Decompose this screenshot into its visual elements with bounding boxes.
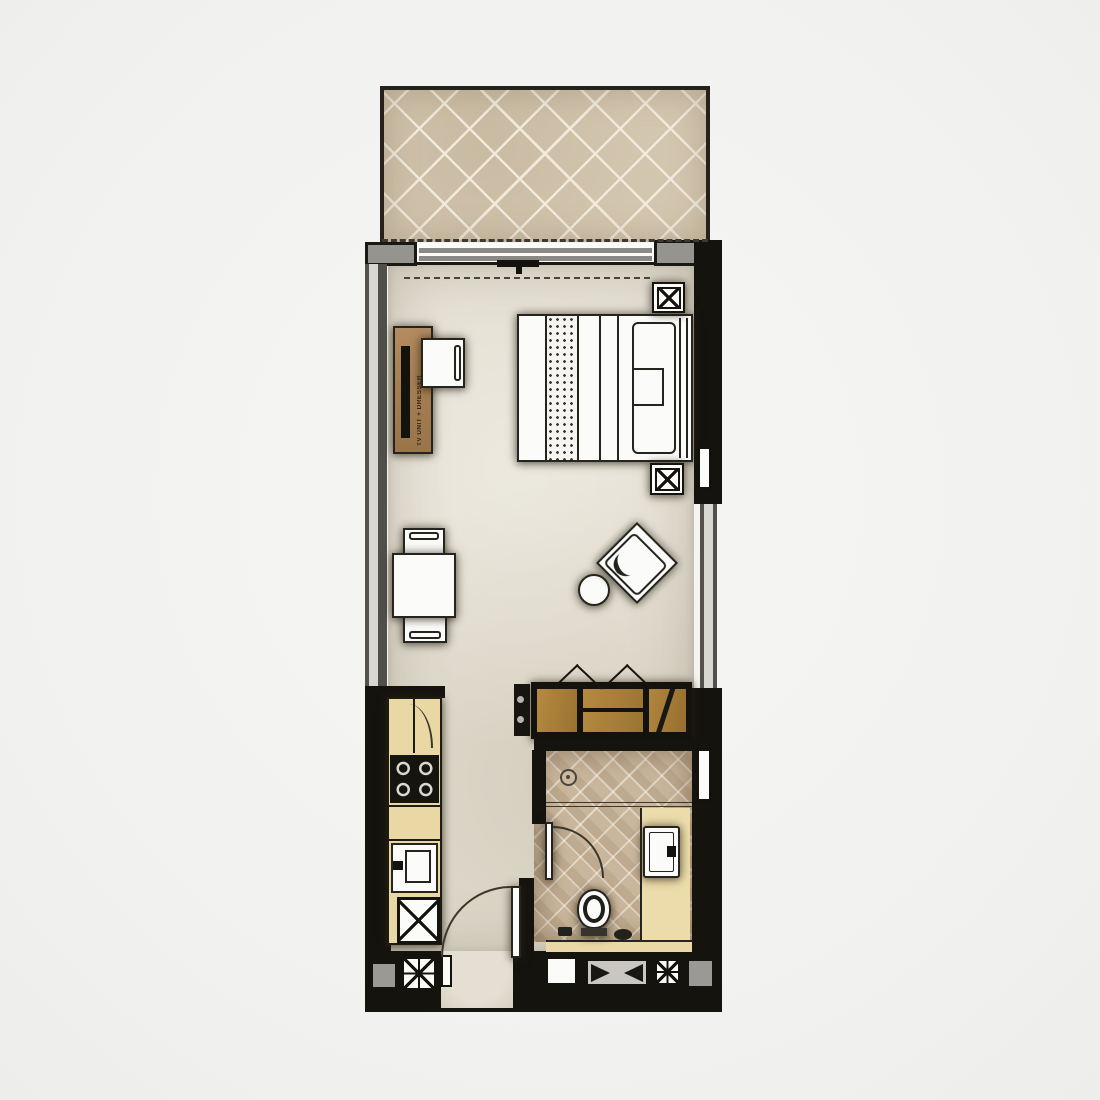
shower-drain-dot <box>566 775 570 779</box>
counter-mid-section <box>389 805 440 841</box>
shaft-bowtie-symbol <box>586 959 648 986</box>
sliding-door-handle-stem <box>516 266 522 274</box>
toilet <box>577 889 611 939</box>
floor-plan-canvas: TV UNIT + DRESSER <box>0 0 1100 1100</box>
toilet-bowl <box>577 889 611 929</box>
entry-door-leaf <box>511 886 521 958</box>
wardrobe-panel-right <box>649 689 686 732</box>
bathroom-door-leaf <box>545 822 553 880</box>
wall-gray-block-symbol-right <box>687 959 714 988</box>
bathroom-top-wall <box>534 738 722 751</box>
appliance-cross-box <box>397 897 440 944</box>
nightstand-bottom <box>650 463 684 495</box>
bed-sheet-fold-line-2 <box>617 316 619 460</box>
sink-basin <box>405 850 431 883</box>
dining-table <box>392 553 456 618</box>
wardrobe-panel-middle <box>583 689 643 732</box>
desk-chair-backrest <box>454 345 461 381</box>
double-bed <box>517 314 693 462</box>
vanity-faucet <box>667 846 676 857</box>
wall-gray-block-symbol-left <box>371 962 397 989</box>
bathroom-bottom-ledge <box>546 940 692 952</box>
column-cross-symbol-right <box>655 959 680 985</box>
cooktop <box>390 755 439 803</box>
overhang-dashed-line <box>404 277 650 279</box>
left-exterior-wall <box>365 264 387 690</box>
bathroom-left-wall-lower <box>519 878 534 955</box>
bed-center-tray <box>632 368 664 406</box>
bed-sheet-fold-line-1 <box>599 316 601 460</box>
right-wall-middle <box>700 504 717 690</box>
bed-headboard <box>679 318 688 458</box>
wardrobe <box>531 682 692 739</box>
right-window-niche-shower <box>696 748 712 802</box>
wardrobe-panel-left <box>537 689 577 732</box>
utility-knob-2 <box>517 716 524 723</box>
balcony <box>380 86 710 242</box>
nightstand-top <box>652 282 685 313</box>
wall-block-top-left <box>365 242 417 266</box>
shower-glass-partition <box>546 802 692 807</box>
utility-fixture <box>514 684 530 736</box>
toilet-base <box>581 928 607 936</box>
cabinet-door-swing <box>409 704 433 748</box>
kitchen-counter-run <box>387 697 442 945</box>
vanity-sink <box>643 826 680 878</box>
entry-door-jamb <box>441 955 452 987</box>
bathroom-left-wall-upper <box>532 750 546 824</box>
wall-white-niche-symbol <box>546 957 577 985</box>
dining-chair-south-backrest <box>409 631 441 639</box>
bath-accessory-left <box>558 927 572 936</box>
wardrobe-hanging-rod <box>654 689 676 732</box>
kitchen-sink <box>391 843 438 893</box>
dining-chair-north-backrest <box>409 532 439 540</box>
utility-knob-1 <box>517 696 524 703</box>
toilet-seat-ring <box>583 895 605 923</box>
right-window-niche-upper <box>697 446 712 490</box>
sink-faucet <box>393 861 403 870</box>
balcony-threshold-dashed-line <box>382 239 708 242</box>
glazing-pane-outer <box>419 248 652 253</box>
desk-chair <box>421 338 465 388</box>
wardrobe-shelf-line <box>583 708 643 712</box>
tv-bar <box>401 346 410 438</box>
bed-runner-dotted <box>545 316 579 460</box>
column-cross-symbol-left <box>402 957 436 990</box>
round-side-table <box>578 574 610 606</box>
shower-drain <box>560 769 577 786</box>
bath-accessory-right <box>614 929 632 940</box>
